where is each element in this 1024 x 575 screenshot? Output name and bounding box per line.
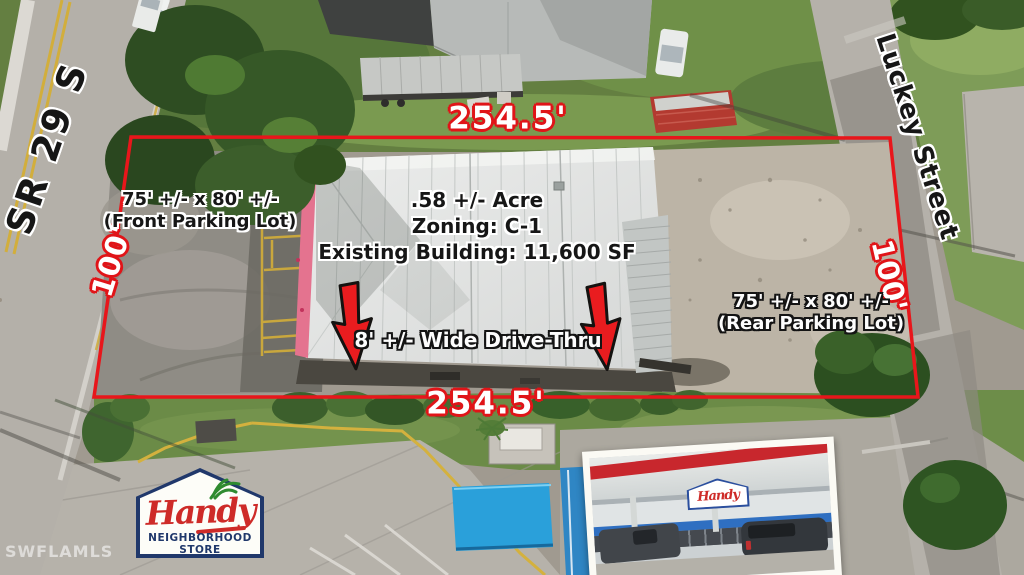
storefront-inset-photo: Handy bbox=[582, 436, 842, 575]
dimension-top: 254.5' bbox=[448, 104, 568, 135]
front-parking-label: 75' +/- x 80' +/- (Front Parking Lot) bbox=[104, 189, 297, 233]
rear-parking-caption: (Rear Parking Lot) bbox=[718, 313, 904, 335]
logo-subtext-store: STORE bbox=[136, 544, 264, 556]
front-parking-caption: (Front Parking Lot) bbox=[104, 211, 297, 233]
drive-thru-arrow-left bbox=[330, 282, 375, 371]
drive-thru-label: 8' +/- Wide Drive-Thru bbox=[354, 330, 601, 350]
truck-cab bbox=[632, 528, 657, 544]
site-building-sf: Existing Building: 11,600 SF bbox=[318, 239, 635, 265]
suv-taillight bbox=[746, 541, 752, 550]
property-boundary-line bbox=[94, 137, 918, 397]
rear-parking-dims: 75' +/- x 80' +/- bbox=[718, 291, 904, 313]
mls-watermark: SWFLAMLS bbox=[5, 544, 113, 560]
site-info-label: .58 +/- Acre Zoning: C-1 Existing Buildi… bbox=[318, 187, 635, 265]
drive-thru-arrow-right bbox=[577, 282, 626, 372]
site-zoning: Zoning: C-1 bbox=[318, 213, 635, 239]
pickup-truck bbox=[598, 522, 681, 564]
handy-logo-badge: Handy NEIGHBORHOOD STORE bbox=[136, 468, 264, 558]
aerial-listing-image: SR 29 S Luckey Street 254.5' 254.5' 100'… bbox=[0, 0, 1024, 575]
suv-window bbox=[748, 523, 796, 539]
logo-subtext-neighborhood: NEIGHBORHOOD bbox=[136, 532, 264, 544]
front-parking-dims: 75' +/- x 80' +/- bbox=[104, 189, 297, 211]
dimension-bottom: 254.5' bbox=[426, 389, 546, 420]
site-acreage: .58 +/- Acre bbox=[318, 187, 635, 213]
storefront-photo-content: Handy bbox=[589, 444, 834, 575]
rear-parking-label: 75' +/- x 80' +/- (Rear Parking Lot) bbox=[718, 291, 904, 335]
